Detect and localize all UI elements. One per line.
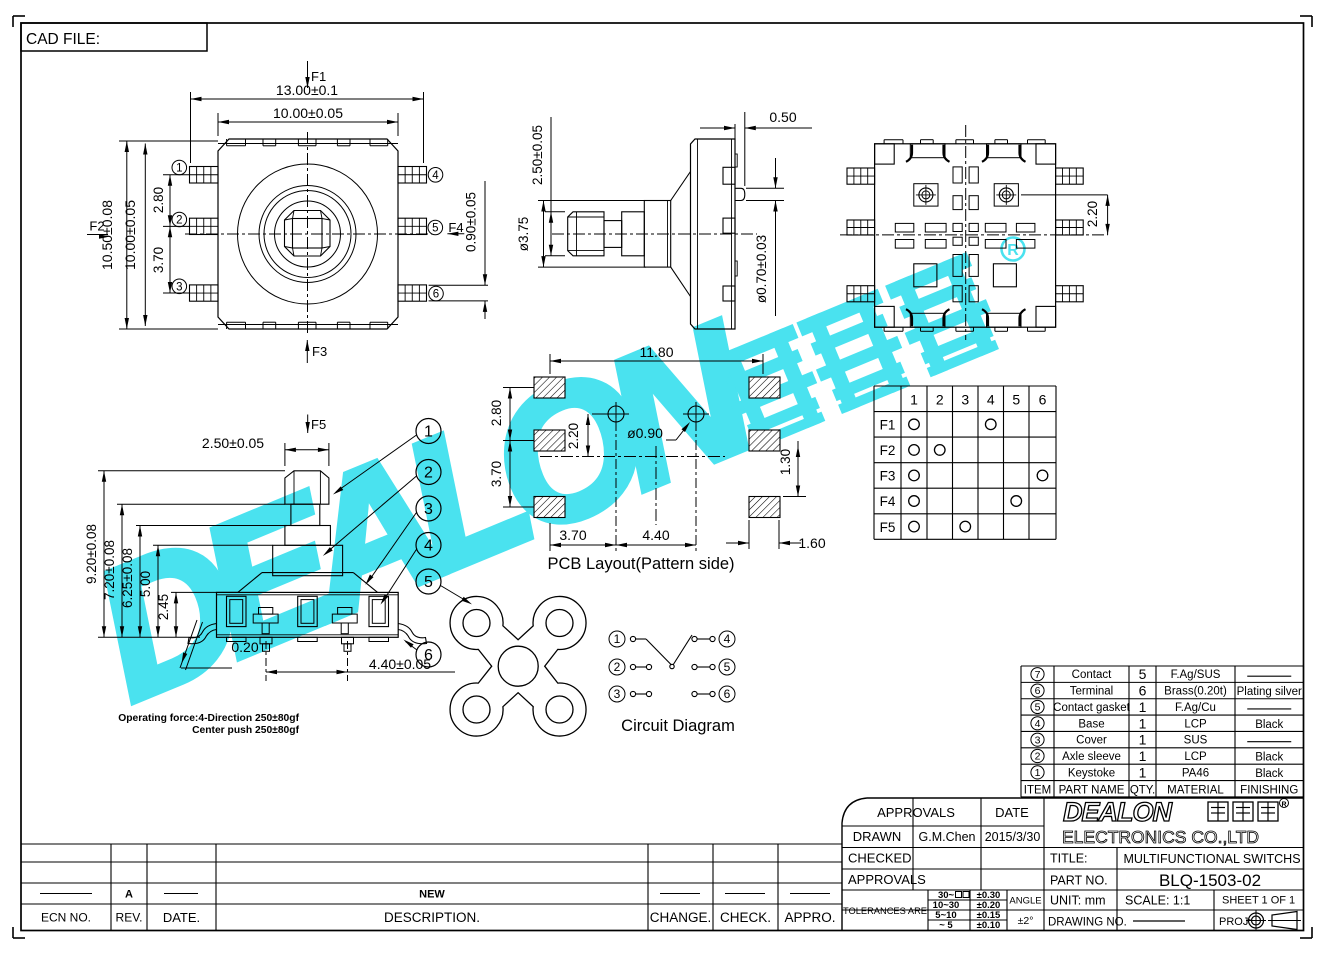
svg-text:F3: F3	[880, 469, 896, 484]
svg-text:Circuit Diagram: Circuit Diagram	[621, 717, 735, 735]
svg-text:ø0.90: ø0.90	[627, 425, 663, 441]
svg-text:Base: Base	[1078, 718, 1104, 730]
svg-text:2: 2	[614, 660, 621, 674]
svg-text:±0.10: ±0.10	[977, 920, 1001, 931]
svg-text:7: 7	[1035, 669, 1041, 681]
svg-text:PART NAME: PART NAME	[1059, 784, 1125, 796]
svg-text:1.30: 1.30	[778, 449, 793, 475]
svg-text:4.40: 4.40	[642, 527, 669, 543]
svg-text:2.50±0.05: 2.50±0.05	[202, 435, 264, 451]
svg-text:2.20: 2.20	[566, 423, 581, 449]
svg-text:QTY.: QTY.	[1130, 784, 1155, 796]
svg-text:2.20: 2.20	[1085, 201, 1100, 227]
svg-text:3.70: 3.70	[489, 461, 504, 487]
svg-text:PART NO.: PART NO.	[1050, 874, 1108, 888]
svg-text:APPROVALS: APPROVALS	[848, 872, 926, 887]
svg-text:3: 3	[176, 281, 182, 293]
svg-text:G.M.Chen: G.M.Chen	[919, 830, 976, 844]
svg-text:Center push 250±80gf: Center push 250±80gf	[192, 725, 300, 736]
svg-text:DATE: DATE	[995, 805, 1029, 820]
svg-text:Operating force:4-Direction 25: Operating force:4-Direction 250±80gf	[118, 713, 299, 724]
svg-text:F5: F5	[880, 520, 896, 535]
svg-text:3: 3	[424, 501, 433, 518]
svg-text:7.20±0.08: 7.20±0.08	[102, 540, 117, 600]
svg-text:4: 4	[424, 538, 433, 555]
svg-text:LCP: LCP	[1184, 718, 1207, 730]
svg-text:3: 3	[961, 392, 969, 408]
svg-text:Axle sleeve: Axle sleeve	[1062, 751, 1121, 763]
svg-text:F2: F2	[89, 219, 104, 234]
svg-text:Contact: Contact	[1072, 669, 1112, 681]
svg-text:Brass(0.20t): Brass(0.20t)	[1164, 686, 1227, 698]
svg-text:DEALON: DEALON	[1063, 797, 1173, 827]
svg-text:5: 5	[424, 574, 433, 591]
svg-text:5: 5	[432, 223, 438, 235]
svg-text:Plating silver: Plating silver	[1237, 686, 1302, 698]
svg-text:Contact gasket: Contact gasket	[1053, 702, 1131, 714]
svg-text:F3: F3	[312, 344, 327, 359]
svg-text:Cover: Cover	[1076, 735, 1107, 747]
svg-text:5: 5	[1012, 392, 1020, 408]
svg-text:10.00±0.05: 10.00±0.05	[122, 200, 138, 270]
svg-text:11.80: 11.80	[640, 344, 674, 360]
svg-text:Keystoke: Keystoke	[1068, 767, 1115, 779]
svg-text:4.40±0.05: 4.40±0.05	[369, 656, 431, 672]
svg-text:±2°: ±2°	[1018, 915, 1034, 927]
svg-text:1.60: 1.60	[798, 535, 825, 551]
svg-text:1: 1	[1139, 748, 1147, 764]
svg-text:2: 2	[1035, 751, 1041, 763]
svg-text:1: 1	[1139, 715, 1147, 731]
svg-text:3.70: 3.70	[151, 247, 166, 273]
svg-text:4: 4	[724, 632, 731, 646]
svg-text:1: 1	[1139, 764, 1147, 780]
svg-text:Black: Black	[1255, 752, 1283, 764]
svg-text:0.50: 0.50	[769, 109, 796, 125]
svg-text:SCALE: 1:1: SCALE: 1:1	[1125, 894, 1190, 908]
svg-text:4: 4	[987, 392, 995, 408]
svg-text:NEW: NEW	[419, 889, 445, 901]
svg-text:F5: F5	[311, 417, 326, 432]
svg-text:5.00: 5.00	[138, 571, 153, 597]
svg-text:Terminal: Terminal	[1070, 686, 1113, 698]
svg-text:2.50±0.05: 2.50±0.05	[530, 125, 545, 185]
svg-text:SUS: SUS	[1184, 735, 1208, 747]
svg-text:PCB Layout(Pattern side): PCB Layout(Pattern side)	[547, 555, 734, 573]
svg-text:1: 1	[910, 392, 918, 408]
svg-text:2: 2	[936, 392, 944, 408]
svg-text:F.Ag/Cu: F.Ag/Cu	[1175, 702, 1216, 714]
svg-text:CAD FILE:: CAD FILE:	[26, 31, 100, 48]
svg-text:R: R	[1281, 802, 1286, 809]
svg-text:TOLERANCES ARE: TOLERANCES ARE	[843, 906, 927, 916]
svg-text:DRAWING NO.: DRAWING NO.	[1048, 917, 1127, 929]
svg-text:1: 1	[614, 632, 621, 646]
svg-text:5: 5	[1035, 702, 1041, 714]
svg-text:ANGLE: ANGLE	[1009, 896, 1041, 907]
svg-text:CHANGE.: CHANGE.	[650, 910, 712, 925]
svg-text:9.20±0.08: 9.20±0.08	[84, 524, 99, 584]
svg-text:Black: Black	[1255, 719, 1283, 731]
svg-text:FINISHING: FINISHING	[1240, 784, 1298, 796]
svg-text:F1: F1	[880, 418, 896, 433]
svg-text:4: 4	[1035, 718, 1041, 730]
svg-text:1: 1	[1139, 732, 1147, 748]
svg-text:CHECK.: CHECK.	[720, 910, 771, 925]
svg-text:1: 1	[1035, 767, 1041, 779]
svg-text:ECN NO.: ECN NO.	[41, 911, 91, 925]
svg-text:3.70: 3.70	[559, 527, 586, 543]
svg-text:2.45: 2.45	[156, 594, 171, 620]
svg-text:5: 5	[1139, 666, 1147, 682]
svg-text:2.80: 2.80	[151, 187, 166, 213]
svg-text:2015/3/30: 2015/3/30	[985, 830, 1041, 844]
svg-text:6: 6	[1139, 683, 1147, 699]
svg-text:ITEM: ITEM	[1024, 784, 1051, 796]
svg-text:1: 1	[176, 163, 182, 175]
svg-text:10.00±0.05: 10.00±0.05	[273, 105, 343, 121]
svg-text:6: 6	[433, 289, 439, 301]
svg-text:APPROVALS: APPROVALS	[877, 805, 955, 820]
svg-text:CHECKED: CHECKED	[848, 851, 912, 866]
svg-text:3: 3	[614, 687, 621, 701]
svg-text:6: 6	[424, 647, 433, 664]
svg-text:ELECTRONICS CO.,LTD: ELECTRONICS CO.,LTD	[1062, 827, 1259, 847]
svg-text:6: 6	[1035, 685, 1041, 697]
svg-text:MULTIFUNCTIONAL SWITCHS: MULTIFUNCTIONAL SWITCHS	[1123, 852, 1300, 866]
svg-text:SHEET 1 OF 1: SHEET 1 OF 1	[1222, 895, 1295, 907]
svg-text:DESCRIPTION.: DESCRIPTION.	[384, 910, 480, 925]
svg-text:4: 4	[432, 170, 439, 182]
svg-text:F4: F4	[880, 494, 896, 509]
svg-text:0.20: 0.20	[231, 639, 258, 655]
svg-text:R: R	[1007, 242, 1019, 259]
svg-text:ø0.70±0.03: ø0.70±0.03	[754, 235, 769, 303]
svg-text:1: 1	[424, 424, 433, 441]
svg-text:MATERIAL: MATERIAL	[1167, 784, 1224, 796]
svg-text:1: 1	[1139, 699, 1147, 715]
svg-text:LCP: LCP	[1184, 751, 1207, 763]
svg-text:F.Ag/SUS: F.Ag/SUS	[1171, 669, 1221, 681]
svg-text:REV.: REV.	[116, 911, 143, 925]
svg-text:APPRO.: APPRO.	[784, 910, 835, 925]
svg-text:6: 6	[724, 687, 731, 701]
svg-text:DRAWN: DRAWN	[853, 829, 902, 844]
svg-text:UNIT: mm: UNIT: mm	[1050, 894, 1106, 908]
svg-text:3: 3	[1035, 734, 1041, 746]
svg-text:0.90±0.05: 0.90±0.05	[464, 192, 479, 252]
svg-text:PROJ:: PROJ:	[1219, 916, 1251, 928]
svg-text:F1: F1	[311, 69, 326, 84]
svg-text:~ 5: ~ 5	[939, 920, 953, 931]
svg-text:2: 2	[424, 465, 433, 482]
svg-text:6: 6	[1039, 392, 1047, 408]
svg-text:2.80: 2.80	[489, 400, 504, 426]
svg-text:Black: Black	[1255, 768, 1283, 780]
svg-text:ø3.75: ø3.75	[516, 217, 531, 252]
svg-text:TITLE:: TITLE:	[1050, 852, 1088, 866]
svg-text:6.25±0.08: 6.25±0.08	[120, 548, 135, 608]
svg-text:2: 2	[176, 215, 182, 227]
svg-text:5: 5	[724, 660, 731, 674]
svg-text:F2: F2	[880, 443, 896, 458]
svg-text:PA46: PA46	[1182, 767, 1209, 779]
svg-text:DATE.: DATE.	[163, 910, 200, 925]
svg-text:A: A	[125, 889, 133, 901]
svg-text:BLQ-1503-02: BLQ-1503-02	[1159, 871, 1261, 890]
